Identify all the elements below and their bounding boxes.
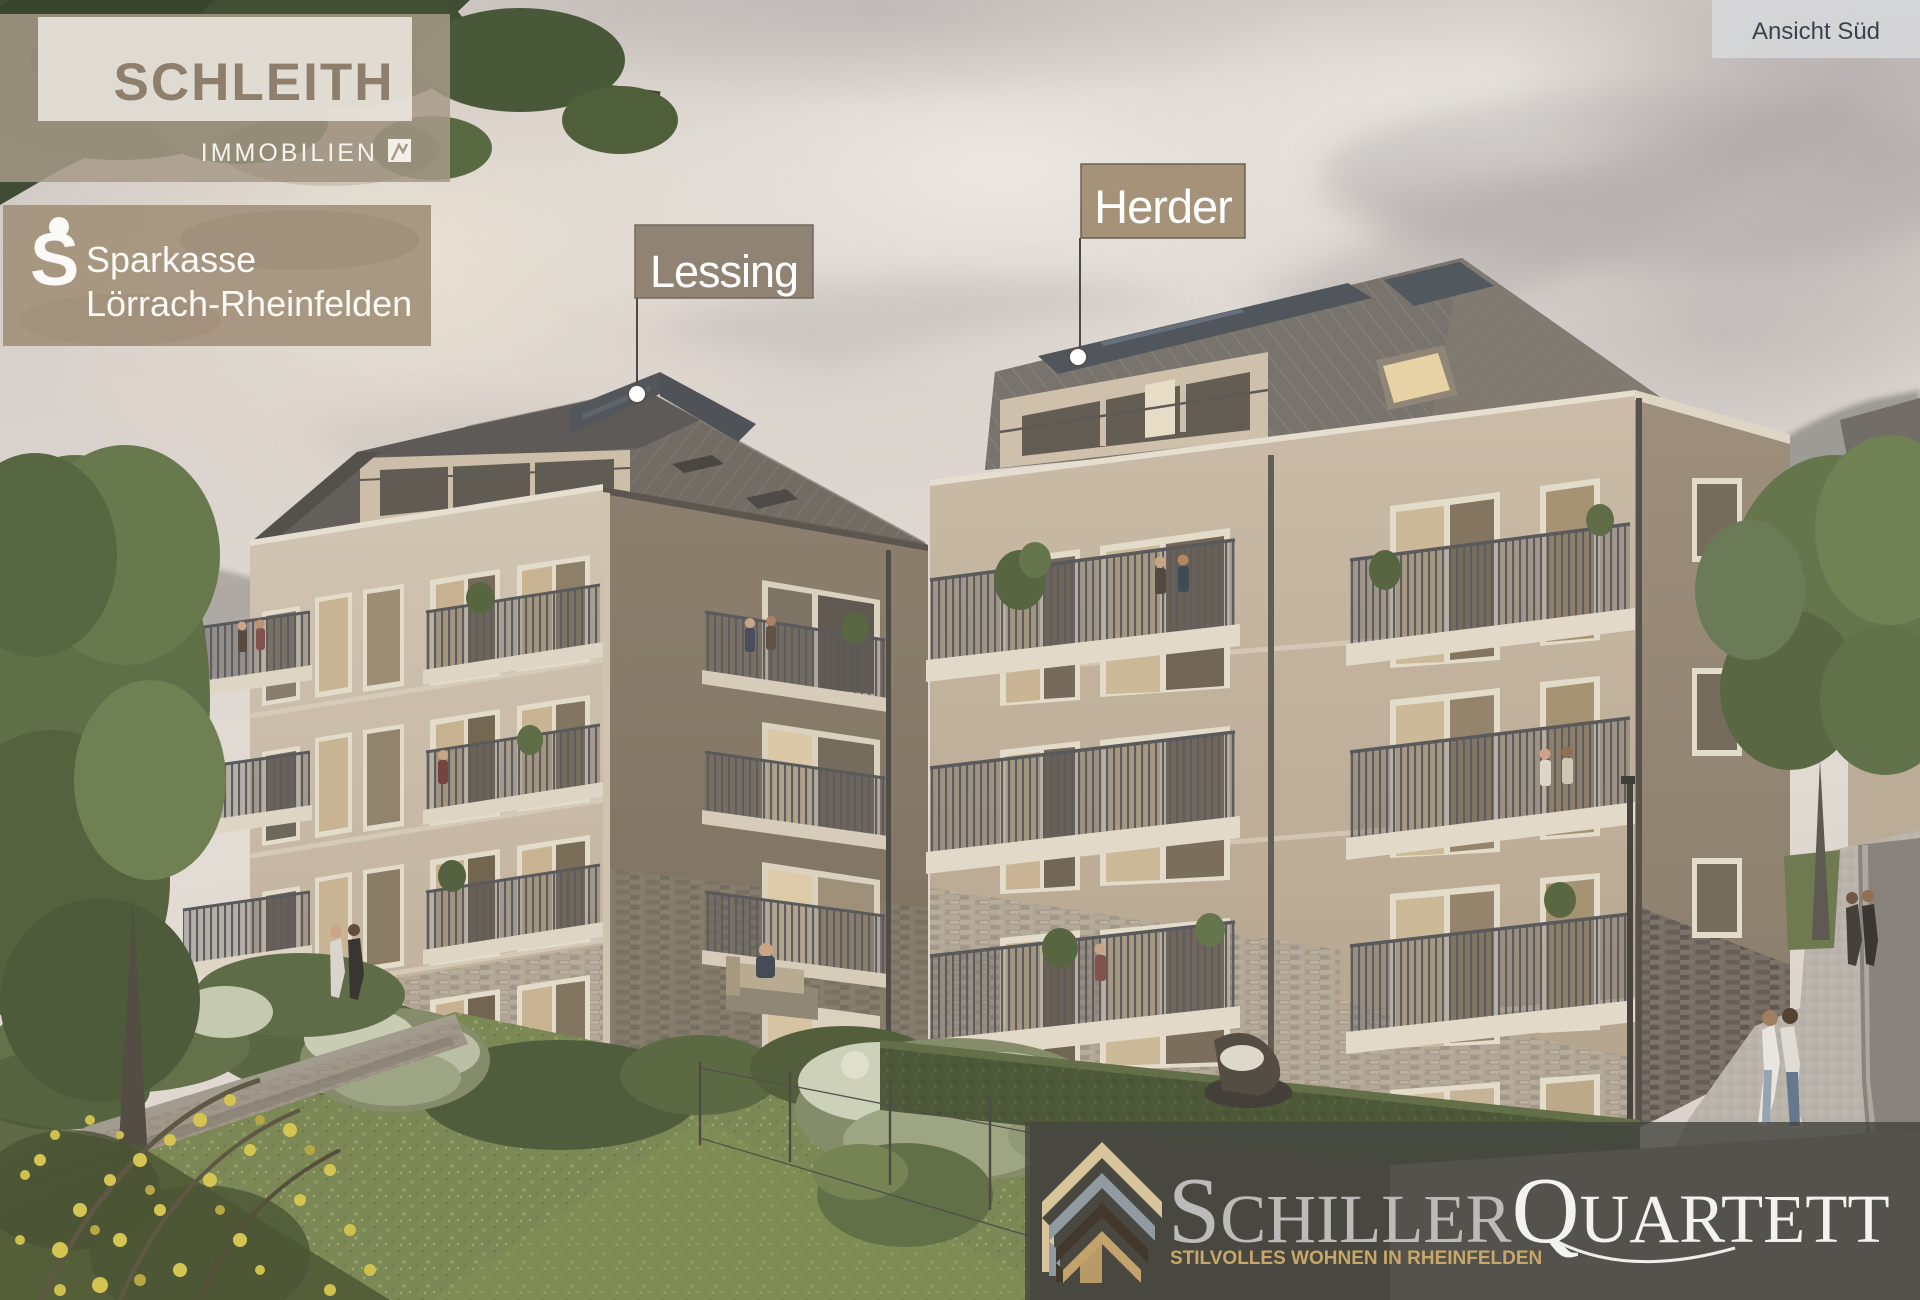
svg-text:IMMOBILIEN: IMMOBILIEN [201,139,378,167]
svg-text:Lörrach-Rheinfelden: Lörrach-Rheinfelden [86,283,412,324]
svg-text:Herder: Herder [1094,180,1232,233]
svg-text:Sparkasse: Sparkasse [86,239,256,280]
svg-text:STILVOLLES WOHNEN IN RHEINFELD: STILVOLLES WOHNEN IN RHEINFELDEN [1170,1248,1542,1269]
svg-text:S: S [30,218,79,301]
svg-text:Ansicht Süd: Ansicht Süd [1752,18,1880,45]
svg-text:SCHLEITH: SCHLEITH [114,53,395,112]
svg-text:Lessing: Lessing [650,246,798,297]
